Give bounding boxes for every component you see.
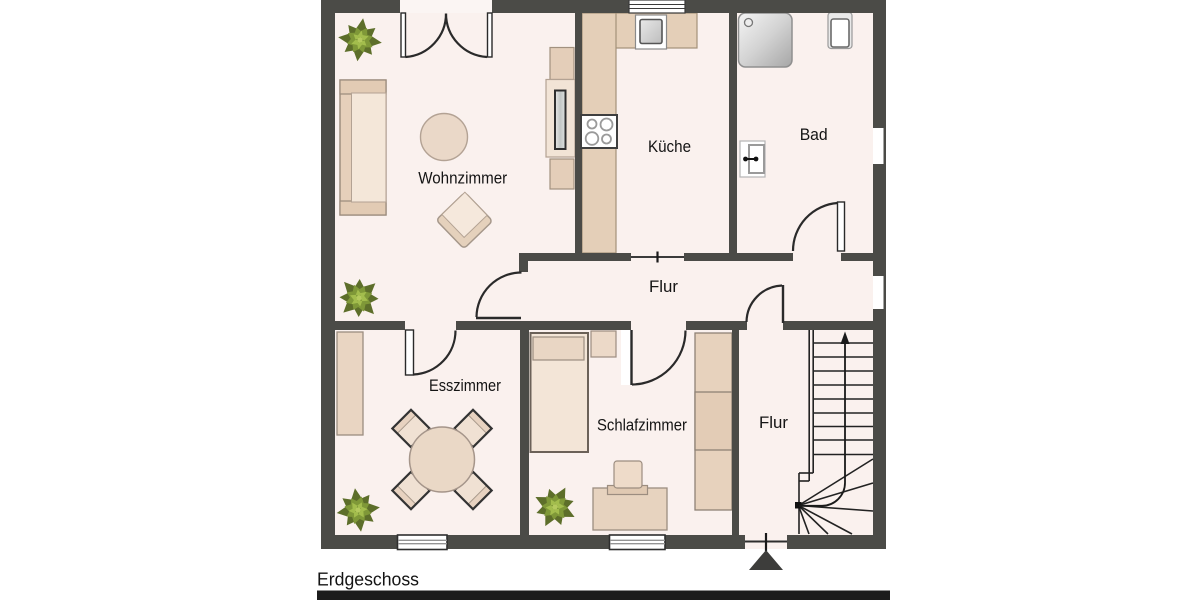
svg-text:Bad: Bad: [800, 125, 828, 144]
svg-text:Küche: Küche: [648, 137, 691, 156]
svg-text:Erdgeschoss: Erdgeschoss: [317, 569, 419, 590]
svg-text:Esszimmer: Esszimmer: [429, 376, 501, 395]
svg-text:Flur: Flur: [649, 277, 678, 296]
svg-text:Flur: Flur: [759, 413, 788, 432]
svg-text:Wohnzimmer: Wohnzimmer: [418, 169, 507, 188]
svg-text:Schlafzimmer: Schlafzimmer: [597, 416, 687, 435]
